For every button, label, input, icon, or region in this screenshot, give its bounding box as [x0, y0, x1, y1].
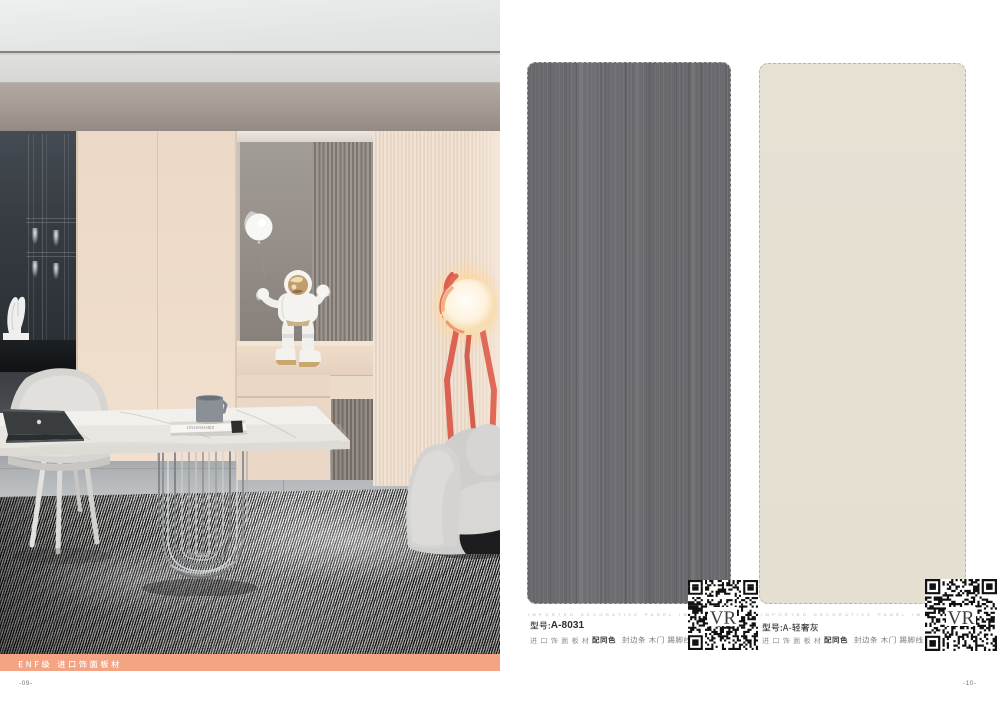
svg-text:LINA ROSSARDI: LINA ROSSARDI	[187, 426, 215, 430]
